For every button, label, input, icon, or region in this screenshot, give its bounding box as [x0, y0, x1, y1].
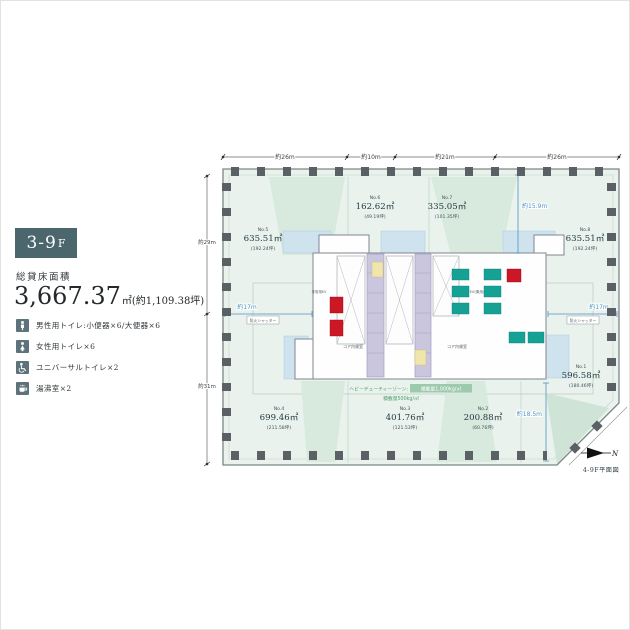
dim-18-5m: 約18.5m — [517, 410, 542, 418]
svg-text:635.51㎡: 635.51㎡ — [244, 233, 283, 244]
dimension-line-left: 約29m 約31m — [198, 174, 216, 466]
svg-text:(121.53坪): (121.53坪) — [393, 424, 417, 431]
heavy-duty-value: 積載量1,000kg/㎡ — [421, 386, 462, 393]
floor-plan-page: 3-9 F 総貸床面積 3,667.37 ㎡ (約1,109.38坪) 男性用ト… — [0, 0, 630, 630]
svg-text:635.51㎡: 635.51㎡ — [566, 233, 605, 244]
dim-top-3: 約21m — [435, 153, 455, 161]
core-lease-label: コア内貸室 — [343, 343, 363, 349]
dim-top-4: 約26m — [547, 153, 567, 161]
load-note: 積載量500kg/㎡ — [383, 395, 419, 402]
dim-top-2: 約10m — [361, 153, 381, 161]
svg-text:335.05㎡: 335.05㎡ — [428, 201, 467, 212]
column-row-right — [607, 183, 616, 395]
north-label: N — [611, 450, 619, 458]
column-row-top — [231, 167, 603, 176]
dimension-line-top: 約26m 約10m 約21m 約26m — [221, 153, 621, 161]
svg-text:(60.76坪): (60.76坪) — [472, 424, 494, 431]
balcony-zone — [381, 231, 425, 253]
core-lease-label: コア内貸室 — [447, 343, 467, 349]
svg-text:(49.19坪): (49.19坪) — [364, 213, 386, 220]
fire-shutter-label: 防火シャッター — [250, 318, 277, 323]
heavy-duty-label: ヘビーデューティーゾーン: — [349, 386, 408, 393]
service-room — [372, 262, 383, 277]
svg-text:(180.46坪): (180.46坪) — [569, 382, 593, 389]
north-arrow: N — [581, 448, 619, 459]
dim-top-1: 約26m — [275, 153, 295, 161]
emergency-ev-label: 非常用EV — [312, 289, 327, 294]
column-row-left — [222, 183, 231, 455]
svg-text:699.46㎡: 699.46㎡ — [260, 412, 299, 423]
dim-left-1: 約29m — [198, 238, 216, 246]
dim-17m-right: 約17m — [589, 303, 609, 311]
svg-text:No.2: No.2 — [478, 406, 489, 412]
plan-caption: 4-9F平面図 — [583, 467, 619, 474]
svg-text:(101.35坪): (101.35坪) — [435, 213, 459, 220]
svg-text:162.62㎡: 162.62㎡ — [356, 201, 395, 212]
svg-text:No.6: No.6 — [370, 195, 381, 201]
service-room — [415, 350, 426, 365]
svg-text:401.76㎡: 401.76㎡ — [386, 412, 425, 423]
svg-text:(192.24坪): (192.24坪) — [251, 245, 275, 252]
svg-text:(192.24坪): (192.24坪) — [573, 245, 597, 252]
column-row-bottom — [231, 451, 547, 460]
building-core: コア内貸室 コア内貸室 EV(乗用) 非常用EV — [295, 235, 564, 379]
ev-label: EV(乗用) — [470, 289, 485, 294]
svg-text:No.5: No.5 — [258, 227, 269, 233]
svg-text:No.3: No.3 — [400, 406, 411, 412]
dim-left-2: 約31m — [198, 382, 216, 390]
dim-17m-left: 約17m — [237, 303, 257, 311]
svg-text:(211.58坪): (211.58坪) — [267, 424, 291, 431]
svg-text:No.4: No.4 — [274, 406, 285, 412]
svg-text:No.1: No.1 — [576, 364, 587, 370]
svg-text:200.88㎡: 200.88㎡ — [464, 412, 503, 423]
svg-text:596.58㎡: 596.58㎡ — [562, 370, 601, 381]
fire-shutter-label: 防火シャッター — [570, 318, 597, 323]
svg-text:No.7: No.7 — [442, 195, 453, 201]
floor-plan-drawing: コア内貸室 コア内貸室 EV(乗用) 非常用EV 約26m 約10m 約21m … — [1, 1, 630, 630]
dim-15-9m: 約15.9m — [522, 202, 547, 210]
svg-text:No.8: No.8 — [580, 227, 591, 233]
